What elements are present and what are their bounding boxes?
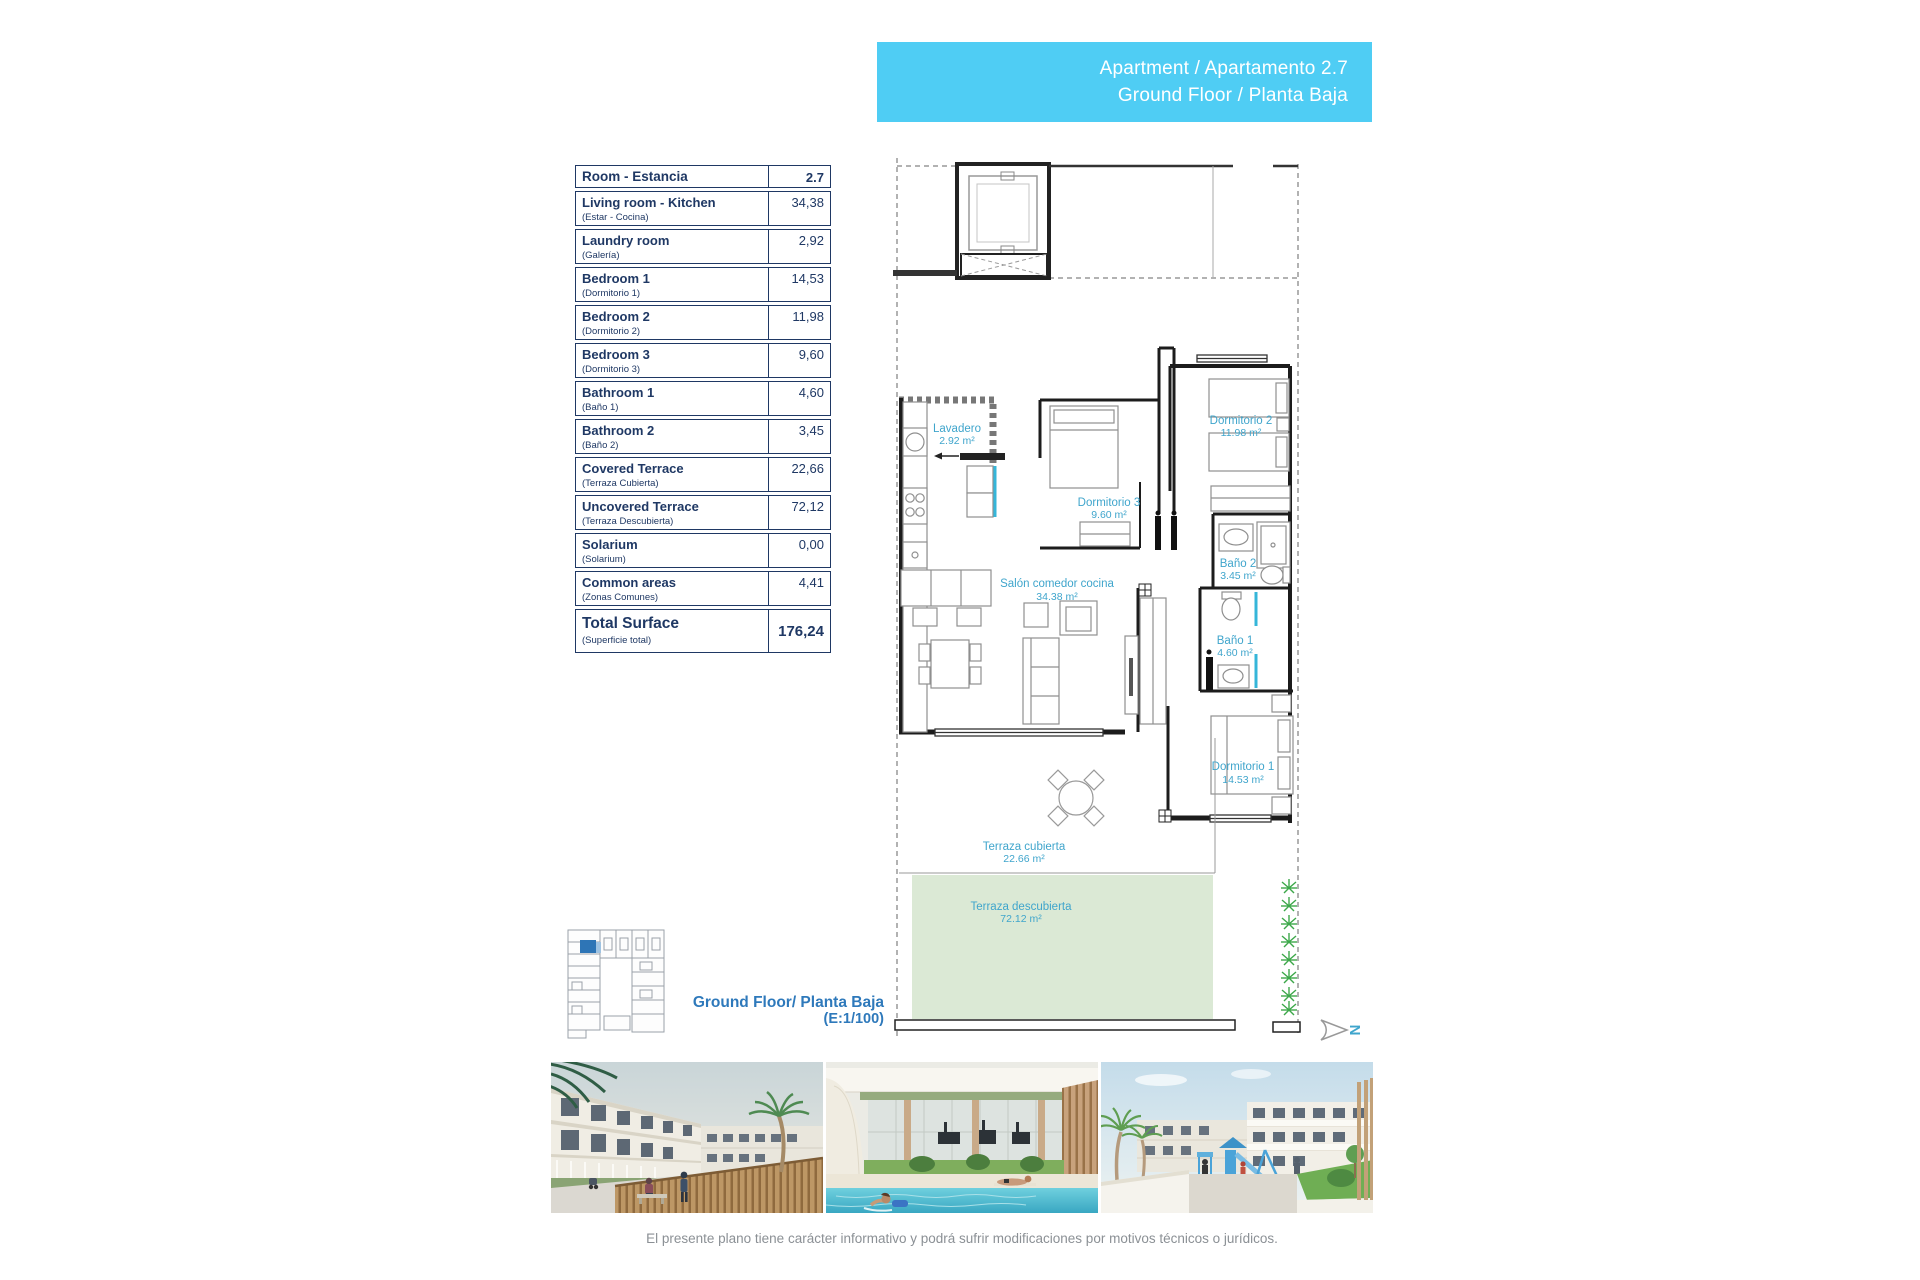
stool	[957, 608, 981, 626]
render-photo-playground	[1101, 1062, 1373, 1213]
row-label-es: (Baño 1)	[582, 400, 764, 413]
slat-wall	[1062, 1080, 1098, 1190]
table-row: Laundry room(Galería) 2,92	[575, 229, 831, 264]
render-photo-pool	[826, 1062, 1098, 1213]
label-dormitorio3: Dormitorio 3	[1078, 497, 1141, 509]
row-label-en: Bedroom 2	[582, 308, 764, 324]
svg-text:4.60 m²: 4.60 m²	[1217, 647, 1253, 659]
row-value: 22,66	[768, 458, 830, 491]
row-value: 14,53	[768, 268, 830, 301]
floor-plan: N Lavadero 2.92 m² Dormitorio 3 9.60 m² …	[893, 146, 1363, 1052]
row-value: 11,98	[768, 306, 830, 339]
floor-scale: (E:1/100)	[634, 1011, 884, 1028]
floor-label-line1: Ground Floor/ Planta Baja	[634, 994, 884, 1011]
dining-table	[919, 640, 981, 688]
label-dormitorio1: Dormitorio 1	[1212, 761, 1275, 773]
table-row: Covered Terrace(Terraza Cubierta) 22,66	[575, 457, 831, 492]
row-value: 0,00	[768, 534, 830, 567]
row-label-en: Solarium	[582, 536, 764, 552]
wardrobe-dorm3	[1080, 522, 1130, 546]
total-value: 176,24	[768, 610, 830, 652]
row-value: 2,92	[768, 230, 830, 263]
table-row: Solarium(Solarium) 0,00	[575, 533, 831, 568]
adjacent-unit	[596, 942, 601, 953]
label-bano2: Baño 2	[1220, 558, 1256, 570]
svg-text:3.45 m²: 3.45 m²	[1220, 570, 1256, 582]
banner-line1: Apartment / Apartamento 2.7	[1100, 55, 1348, 82]
row-value: 34,38	[768, 192, 830, 225]
row-label-es: (Estar - Cocina)	[582, 210, 764, 223]
row-label-en: Bathroom 2	[582, 422, 764, 438]
row-label-es: (Dormitorio 1)	[582, 286, 764, 299]
row-value: 3,45	[768, 420, 830, 453]
svg-text:34.38 m²: 34.38 m²	[1036, 591, 1078, 603]
roof-beam	[826, 1068, 1098, 1092]
row-label-es: (Dormitorio 2)	[582, 324, 764, 337]
sofa	[1023, 638, 1059, 724]
bed-dorm1	[1211, 695, 1293, 814]
row-label-es: (Terraza Descubierta)	[582, 514, 764, 527]
label-terraza-cubierta: Terraza cubierta	[983, 841, 1066, 853]
roof-planter	[860, 1092, 1064, 1100]
table-header-label: Room - Estancia	[576, 166, 768, 187]
label-bano1: Baño 1	[1217, 635, 1253, 647]
bed-dorm3	[1050, 406, 1118, 488]
plants	[1281, 879, 1297, 1015]
uncovered-terrace-area	[912, 875, 1213, 1019]
highlighted-unit	[580, 940, 596, 953]
row-value: 4,41	[768, 572, 830, 605]
table-row: Common areas(Zonas Comunes) 4,41	[575, 571, 831, 606]
wardrobe-dorm2	[1211, 486, 1290, 511]
row-value: 9,60	[768, 344, 830, 377]
banner-line2: Ground Floor / Planta Baja	[1118, 82, 1348, 109]
sink-icon	[903, 542, 927, 568]
side-table	[1024, 603, 1048, 627]
lobby-walls	[893, 166, 1298, 277]
hall-cupboard	[967, 466, 993, 517]
label-dormitorio2: Dormitorio 2	[1210, 415, 1273, 427]
table-row: Bedroom 2(Dormitorio 2) 11,98	[575, 305, 831, 340]
row-label-en: Living room - Kitchen	[582, 194, 764, 210]
row-label-en: Bedroom 1	[582, 270, 764, 286]
table-row: Living room - Kitchen(Estar - Cocina) 34…	[575, 191, 831, 226]
svg-text:72.12 m²: 72.12 m²	[1000, 913, 1042, 925]
kitchen-island	[901, 570, 991, 606]
row-label-en: Bedroom 3	[582, 346, 764, 362]
north-arrow-icon: N	[1321, 1020, 1363, 1040]
plan-sheet: Apartment / Apartamento 2.7 Ground Floor…	[0, 0, 1920, 1280]
render-photo-buildings	[551, 1062, 823, 1213]
disclaimer-text: El presente plano tiene carácter informa…	[551, 1231, 1373, 1246]
table-header-row: Room - Estancia 2.7	[575, 165, 831, 188]
table-row: Uncovered Terrace(Terraza Descubierta) 7…	[575, 495, 831, 530]
total-label-en: Total Surface	[582, 612, 764, 633]
toilet-icon	[1222, 598, 1240, 620]
pool-deck	[826, 1174, 1098, 1188]
row-label-es: (Solarium)	[582, 552, 764, 565]
render-photos	[551, 1062, 1373, 1213]
row-label-es: (Terraza Cubierta)	[582, 476, 764, 489]
svg-text:14.53 m²: 14.53 m²	[1222, 774, 1264, 786]
row-label-en: Laundry room	[582, 232, 764, 248]
row-label-en: Common areas	[582, 574, 764, 590]
row-label-es: (Baño 2)	[582, 438, 764, 451]
wood-slats	[1357, 1078, 1373, 1200]
row-label-en: Uncovered Terrace	[582, 498, 764, 514]
svg-text:11.98 m²: 11.98 m²	[1221, 427, 1262, 439]
total-label-es: (Superficie total)	[582, 633, 764, 646]
terrace-table	[1048, 770, 1104, 826]
row-value: 4,60	[768, 382, 830, 415]
table-row: Bathroom 2(Baño 2) 3,45	[575, 419, 831, 454]
stove-icon	[903, 488, 927, 524]
stool	[913, 608, 937, 626]
north-letter: N	[1346, 1025, 1363, 1036]
entry-arrow	[934, 453, 1005, 461]
label-lavadero: Lavadero	[933, 423, 981, 435]
stairs	[961, 254, 1047, 276]
bush	[1327, 1169, 1355, 1187]
table-row: Bedroom 3(Dormitorio 3) 9,60	[575, 343, 831, 378]
row-label-es: (Dormitorio 3)	[582, 362, 764, 375]
path	[1189, 1174, 1297, 1213]
surface-table: Room - Estancia 2.7 Living room - Kitche…	[575, 165, 831, 656]
svg-text:2.92 m²: 2.92 m²	[939, 435, 975, 447]
toilet-icon	[1261, 566, 1283, 584]
svg-text:22.66 m²: 22.66 m²	[1003, 853, 1045, 865]
floor-label: Ground Floor/ Planta Baja (E:1/100)	[634, 994, 884, 1028]
table-row: Bedroom 1(Dormitorio 1) 14,53	[575, 267, 831, 302]
label-salon: Salón comedor cocina	[1000, 578, 1114, 590]
svg-text:9.60 m²: 9.60 m²	[1091, 509, 1127, 521]
table-row: Bathroom 1(Baño 1) 4,60	[575, 381, 831, 416]
boundary-walls	[895, 1020, 1300, 1032]
row-label-es: (Zonas Comunes)	[582, 590, 764, 603]
entrance-doors	[1155, 511, 1177, 551]
armchair	[1060, 601, 1097, 635]
table-header-value: 2.7	[768, 166, 830, 187]
title-banner: Apartment / Apartamento 2.7 Ground Floor…	[877, 42, 1372, 122]
white-wall-right	[1297, 1198, 1373, 1213]
tv-unit	[1125, 636, 1138, 714]
row-label-en: Bathroom 1	[582, 384, 764, 400]
label-terraza-descubierta: Terraza descubierta	[971, 901, 1073, 913]
wardrobe-hall	[1140, 598, 1166, 724]
row-label-en: Covered Terrace	[582, 460, 764, 476]
row-label-es: (Galería)	[582, 248, 764, 261]
row-value: 72,12	[768, 496, 830, 529]
table-row-total: Total Surface(Superficie total) 176,24	[575, 609, 831, 653]
